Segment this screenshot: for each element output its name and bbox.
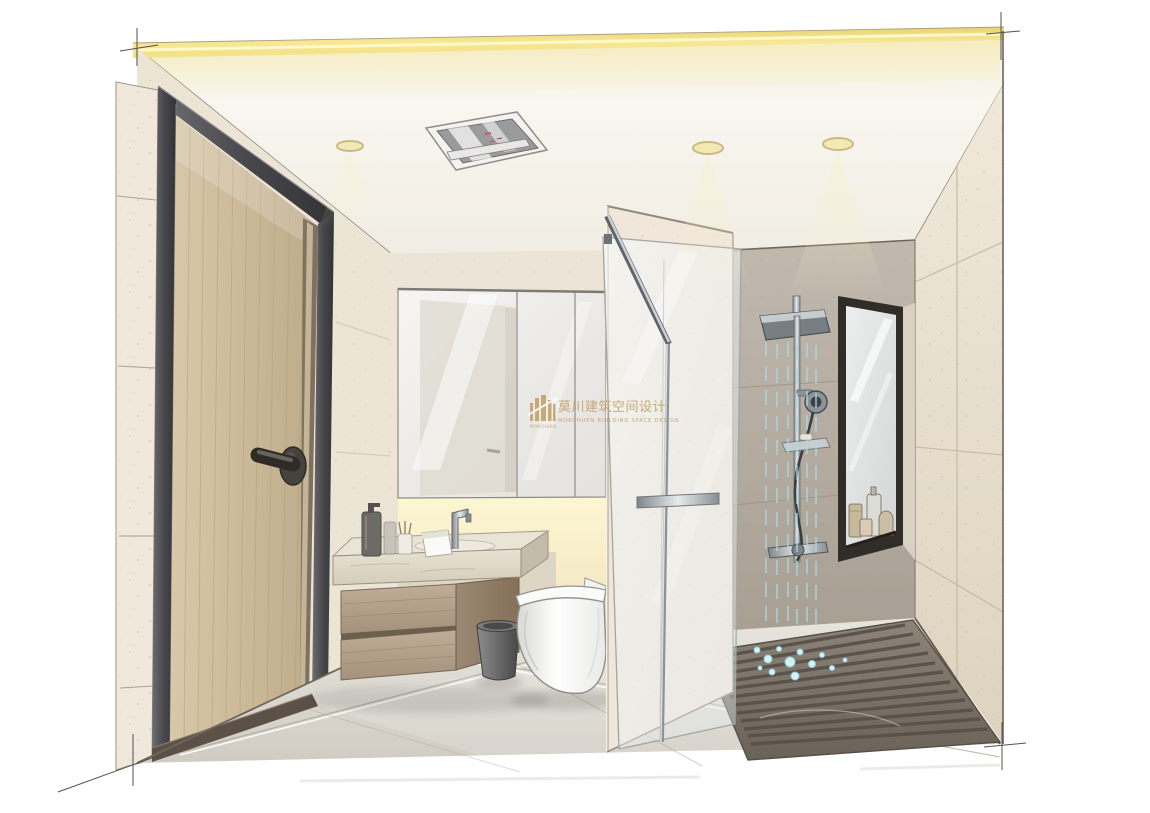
bathroom-rendering: MOKCHUEN 莫川建筑空间设计 MOKCHUEN BUILDING SPAC…	[0, 0, 1150, 813]
tumbler-cup	[398, 534, 412, 554]
shower-niche-window	[838, 296, 915, 562]
watermark-en: MOKCHUEN BUILDING SPACE DESIGN	[558, 418, 680, 424]
wall-left-outer-strip	[116, 82, 158, 770]
watermark-cn: 莫川建筑空间设计	[558, 399, 666, 415]
shower-glass-door[interactable]	[603, 215, 741, 749]
downlight	[693, 142, 723, 154]
shower-area	[733, 240, 915, 650]
glass-door-hinge	[604, 234, 612, 244]
rendering-canvas: MOKCHUEN 莫川建筑空间设计 MOKCHUEN BUILDING SPAC…	[0, 0, 1150, 813]
watermark: MOKCHUEN 莫川建筑空间设计 MOKCHUEN BUILDING SPAC…	[528, 395, 680, 429]
downlight	[823, 138, 853, 150]
mirror-cabinet[interactable]	[398, 289, 606, 498]
trash-bin[interactable]	[477, 621, 519, 681]
soap-dispenser	[362, 512, 381, 556]
watermark-logo-text: MOKCHUEN	[530, 424, 556, 429]
downlight	[337, 141, 363, 151]
lotion-bottle	[384, 522, 396, 554]
entry-door[interactable]	[170, 116, 318, 744]
vanity-drawer-top[interactable]	[341, 584, 456, 634]
